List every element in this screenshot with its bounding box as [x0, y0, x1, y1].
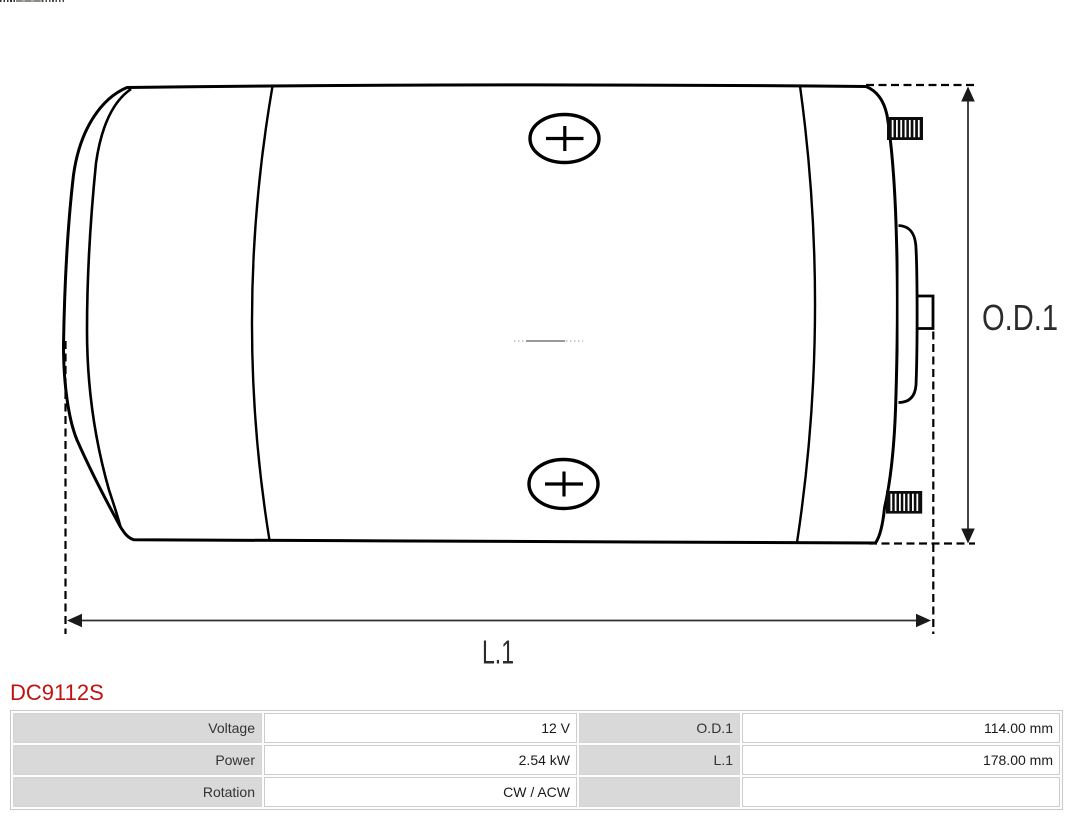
svg-text:L.1: L.1	[482, 634, 514, 671]
svg-text:O.D.1: O.D.1	[982, 297, 1058, 338]
